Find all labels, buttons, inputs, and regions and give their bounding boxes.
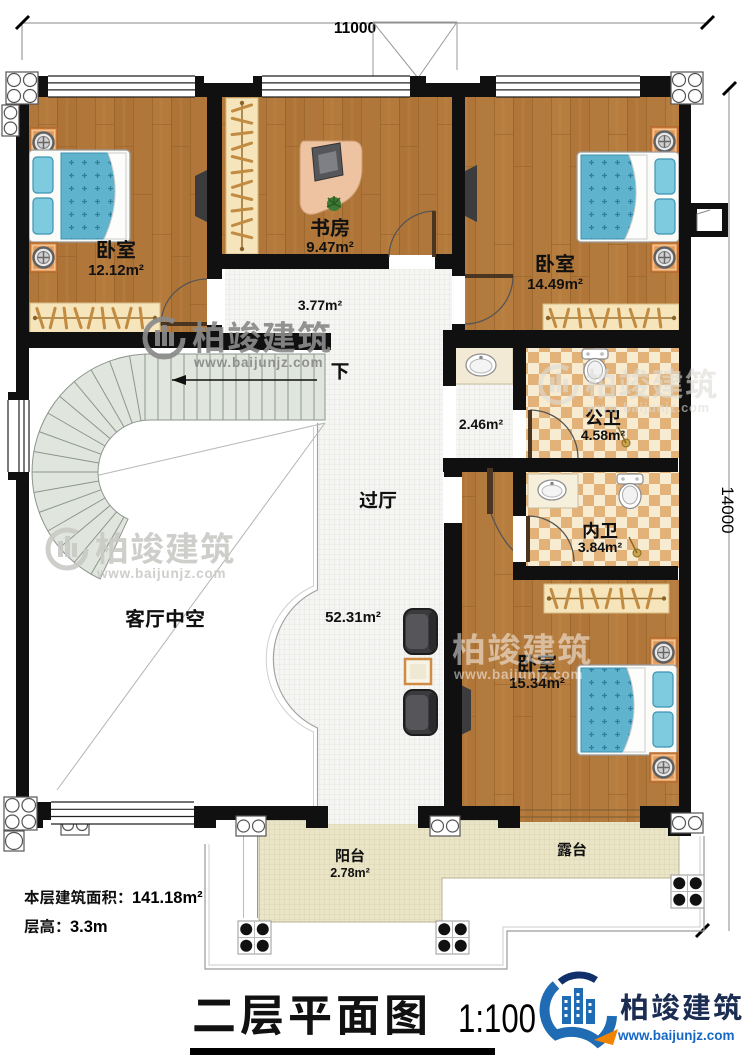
svg-text:4.58m²: 4.58m²	[581, 427, 626, 443]
svg-text:www.baijunjz.com: www.baijunjz.com	[96, 566, 226, 581]
svg-text:1:100: 1:100	[458, 997, 536, 1041]
svg-text:14000: 14000	[718, 486, 737, 533]
svg-text:3.3m: 3.3m	[70, 918, 108, 936]
svg-text:9.47m²: 9.47m²	[306, 239, 354, 256]
svg-text:12.12m²: 12.12m²	[88, 262, 144, 279]
svg-text:141.18m²: 141.18m²	[132, 889, 203, 907]
svg-text:3.77m²: 3.77m²	[298, 297, 343, 313]
svg-text:www.baijunjz.com: www.baijunjz.com	[453, 667, 583, 682]
svg-text:www.baijunjz.com: www.baijunjz.com	[586, 400, 710, 415]
svg-text:14.49m²: 14.49m²	[527, 276, 583, 293]
svg-text:2.46m²: 2.46m²	[459, 416, 504, 432]
svg-text:www.baijunjz.com: www.baijunjz.com	[193, 355, 323, 370]
svg-text:www.baijunjz.com: www.baijunjz.com	[617, 1028, 735, 1043]
svg-text:11000: 11000	[334, 20, 376, 37]
svg-text:2.78m²: 2.78m²	[330, 866, 370, 880]
svg-text:3.84m²: 3.84m²	[578, 539, 623, 555]
svg-text:52.31m²: 52.31m²	[325, 609, 381, 626]
